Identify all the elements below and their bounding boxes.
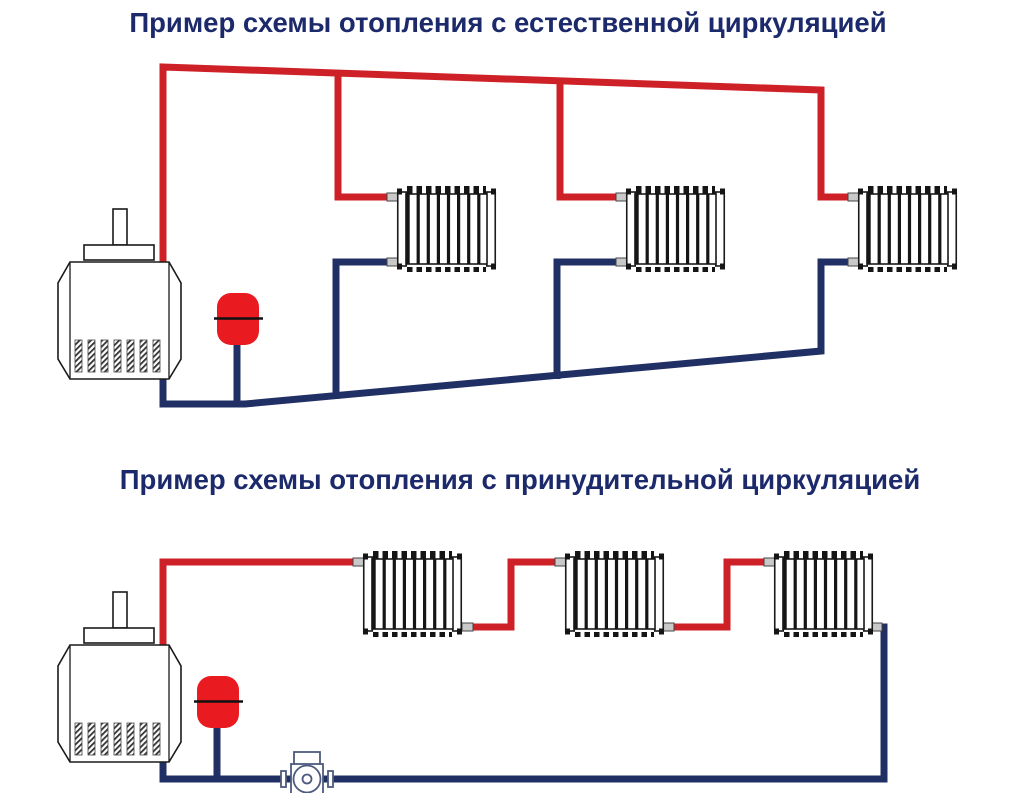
radiator-icon — [626, 189, 725, 270]
expansion-tank-icon — [214, 293, 263, 345]
radiator-icon — [774, 554, 873, 635]
radiator-icon — [565, 554, 664, 635]
heating-schemes-figure: Пример схемы отопления с естественной ци… — [0, 0, 1024, 793]
radiator-icon — [397, 189, 496, 270]
expansion-tank-icon — [194, 676, 243, 728]
radiator-icon — [858, 189, 957, 270]
diagram-forced-title: Пример схемы отопления с принудительной … — [120, 464, 920, 495]
diagram-natural-title: Пример схемы отопления с естественной ци… — [129, 7, 886, 38]
diagram-svg: Пример схемы отопления с естественной ци… — [0, 0, 1024, 793]
radiator-icon — [363, 554, 462, 635]
